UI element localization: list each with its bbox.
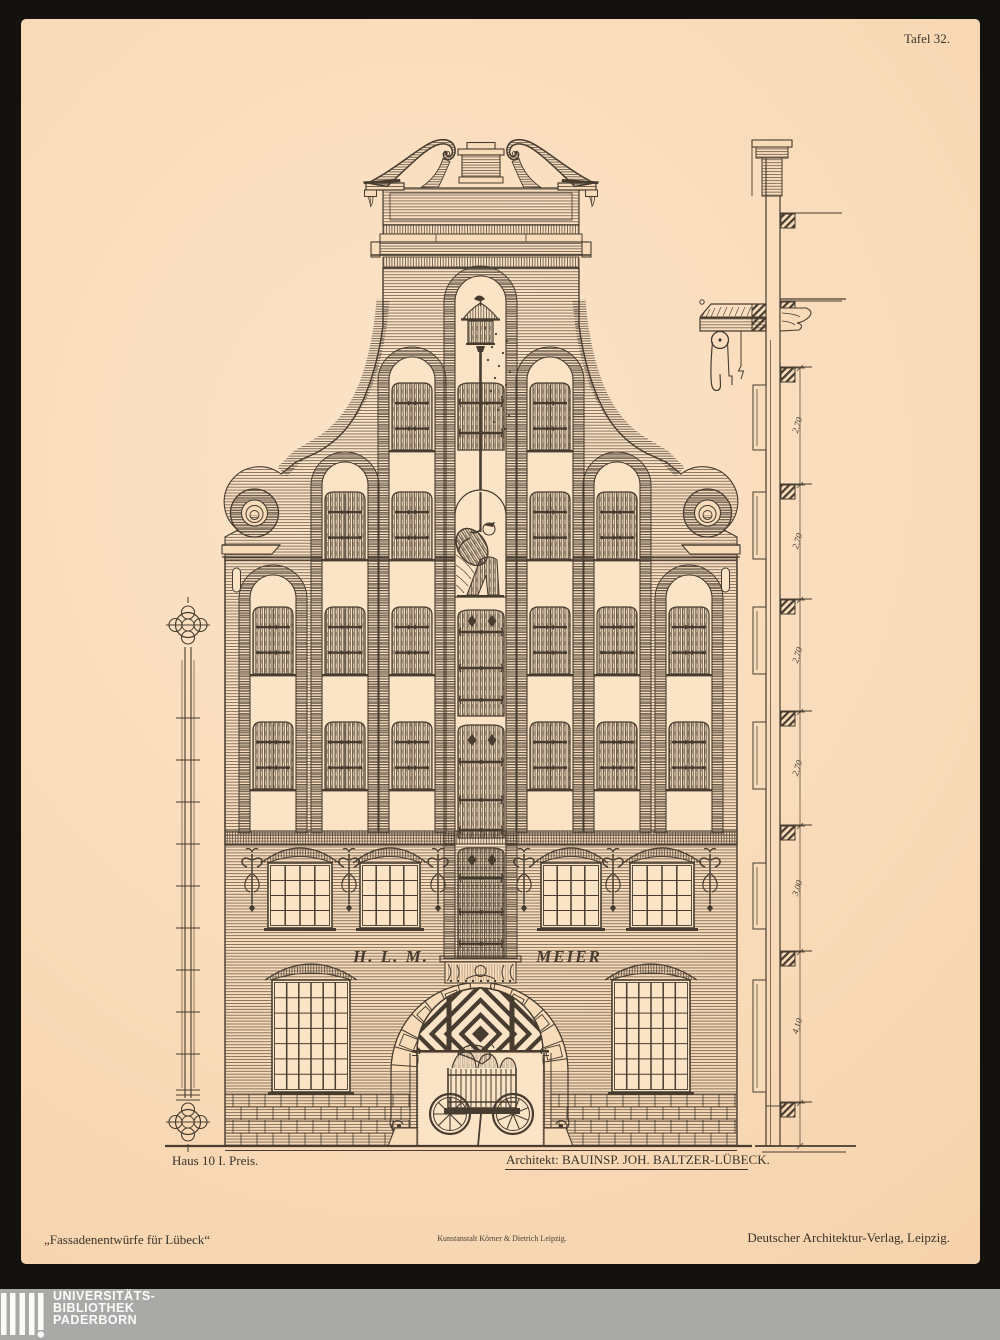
svg-text:Tafel 32.: Tafel 32. [904, 31, 950, 46]
svg-text:Haus 10 I. Preis.: Haus 10 I. Preis. [172, 1153, 258, 1168]
svg-text:„Fassadenentwürfe für Lübeck“: „Fassadenentwürfe für Lübeck“ [44, 1232, 210, 1247]
svg-text:Deutscher Architektur-Verlag,: Deutscher Architektur-Verlag, Leipzig. [747, 1230, 950, 1245]
svg-text:2,70: 2,70 [790, 759, 805, 778]
svg-text:2,70: 2,70 [790, 416, 805, 435]
svg-text:3,00: 3,00 [790, 879, 805, 898]
svg-text:Kunstanstalt Körner & Dietrich: Kunstanstalt Körner & Dietrich Leipzig. [437, 1234, 567, 1243]
svg-text:MEIER: MEIER [535, 947, 602, 966]
svg-text:Architekt: BAUINSP. JOH. BALTZ: Architekt: BAUINSP. JOH. BALTZER-LÜBECK. [506, 1152, 770, 1167]
svg-text:2,70: 2,70 [790, 532, 805, 551]
svg-text:4,10: 4,10 [790, 1017, 805, 1036]
svg-text:H. L. M.: H. L. M. [352, 947, 429, 966]
svg-text:2,70: 2,70 [790, 646, 805, 665]
